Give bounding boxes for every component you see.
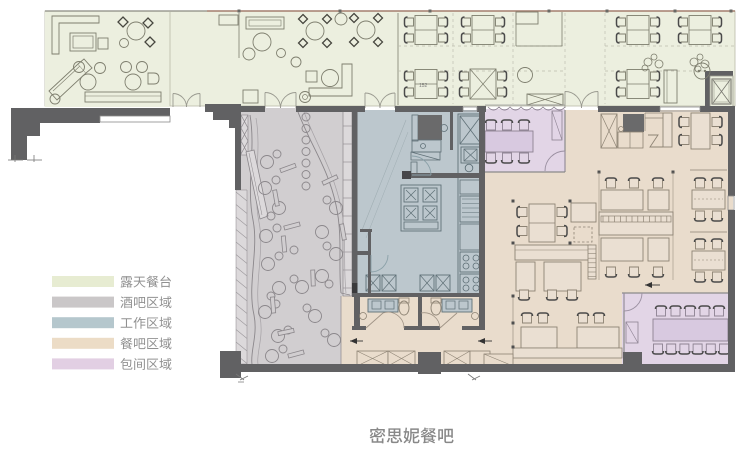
svg-text:152: 152 — [419, 83, 428, 89]
